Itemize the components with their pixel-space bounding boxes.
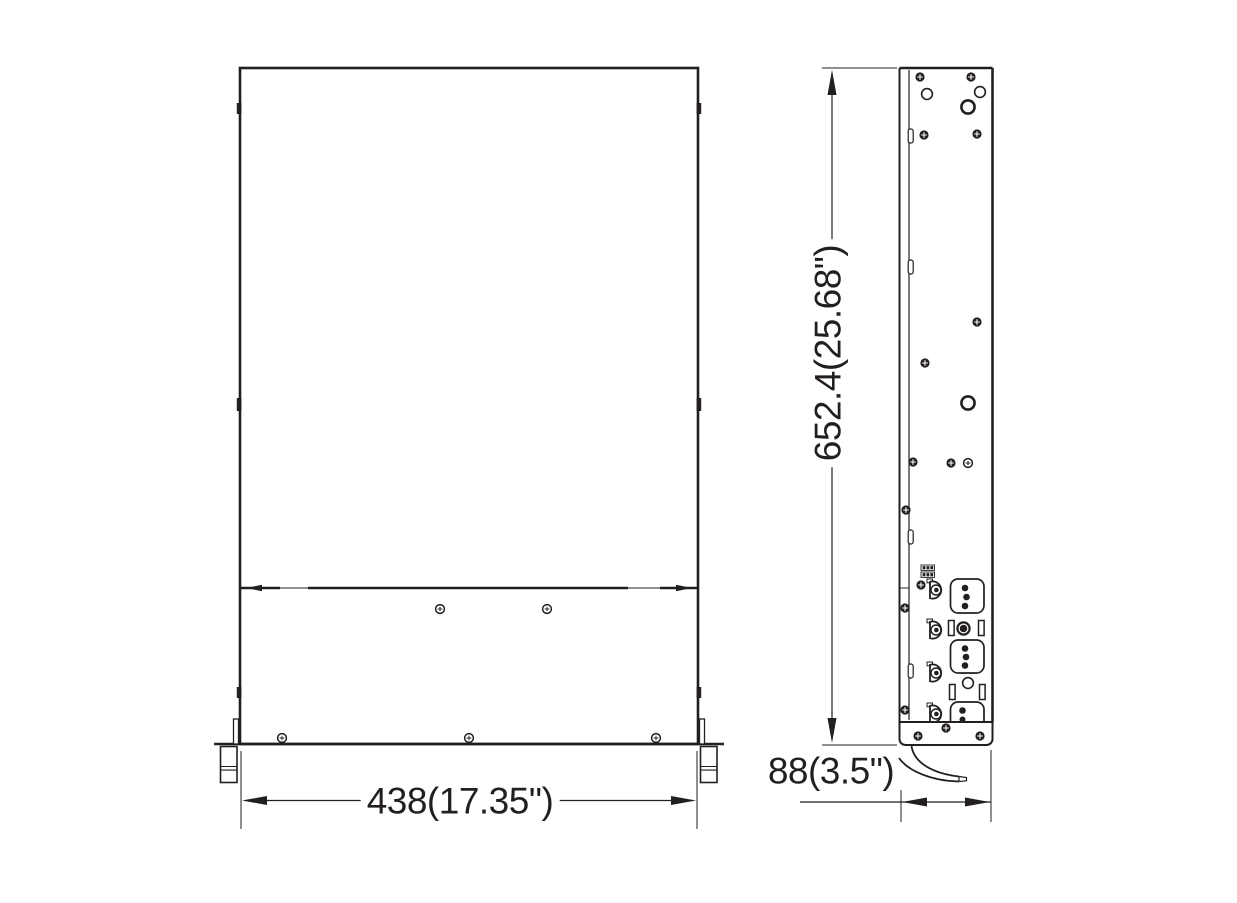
hinge-ticks [237, 103, 701, 698]
screw-icon [900, 603, 909, 612]
twist-connector-icon [927, 619, 941, 639]
round-socket-icon [956, 621, 970, 635]
twist-connector-icon [927, 579, 941, 599]
arrowhead-left-icon [242, 796, 267, 805]
clip-icon [908, 260, 913, 274]
screw-icon [946, 458, 955, 467]
clip-icon [908, 664, 913, 678]
screw-icon [966, 72, 975, 81]
slot-icon [950, 685, 956, 700]
technical-drawing-page: 438(17.35") 652.4(25.68") 88(3.5") [0, 0, 1237, 903]
clip-icon [908, 530, 913, 544]
hole-icon [961, 396, 974, 409]
screw-icon [901, 505, 910, 514]
screw-icon [941, 723, 950, 732]
hole-icon [963, 678, 974, 689]
side-bottom-bracket [900, 722, 993, 745]
screw-icon [652, 734, 661, 743]
left-bracket-plate [234, 719, 239, 744]
arrowhead-left-icon [902, 798, 927, 807]
screw-icon [975, 731, 984, 740]
screw-icon [915, 72, 924, 81]
screw-icon [278, 734, 287, 743]
outlet-icon [951, 702, 985, 723]
front-divider-line [240, 585, 698, 591]
left-foot [221, 747, 238, 783]
screw-icon [920, 358, 929, 367]
arrowhead-right-icon [671, 796, 696, 805]
screw-icon [436, 605, 445, 614]
rear-connector-panel [921, 565, 985, 723]
front-view [214, 68, 724, 783]
screw-icon [913, 731, 922, 740]
slot-icon [980, 685, 986, 700]
screw-icon [543, 605, 552, 614]
dip-switch-icon [921, 565, 935, 577]
extension-lines [901, 750, 991, 822]
slot-icon [949, 621, 955, 636]
outlet-icon [951, 640, 985, 673]
hole-icon [975, 87, 986, 98]
twist-connector-icon [927, 662, 941, 682]
clip-icon [908, 129, 913, 143]
hole-icon [922, 89, 933, 100]
side-view [899, 68, 993, 782]
front-screws [278, 605, 661, 743]
depth-dimension-label: 88(3.5") [768, 753, 894, 790]
width-dimension-label: 438(17.35") [361, 782, 560, 821]
arrowhead-up-icon [828, 70, 837, 95]
screw-icon [919, 130, 928, 139]
side-screws [900, 72, 981, 714]
outlet-icon [951, 579, 985, 613]
twist-connector-icon [927, 703, 941, 723]
screw-icon [900, 705, 909, 714]
screw-icon [908, 457, 917, 466]
height-dimension-label: 652.4(25.68") [809, 239, 848, 467]
bottom-mounting-brackets [214, 719, 724, 783]
screw-icon [972, 129, 981, 138]
front-panel-outline [240, 68, 698, 744]
right-bracket-plate [700, 719, 705, 744]
power-cord [899, 746, 967, 782]
slot-icon [979, 621, 985, 636]
technical-drawing-canvas [0, 0, 1237, 903]
screw-icon [465, 734, 474, 743]
screw-icon [964, 459, 973, 468]
screw-icon [916, 580, 925, 589]
arrowhead-down-icon [828, 718, 837, 743]
hole-icon [961, 100, 974, 113]
right-foot [701, 747, 718, 783]
arrowhead-right-icon [965, 798, 990, 807]
screw-icon [972, 317, 981, 326]
